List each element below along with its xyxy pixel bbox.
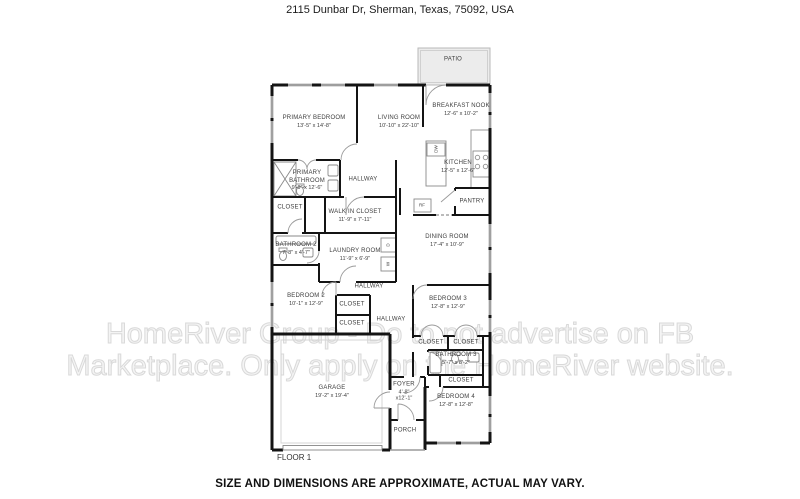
floorplan-page: 2115 Dunbar Dr, Sherman, Texas, 75092, U…: [0, 0, 800, 499]
room-label-primary-bedroom: PRIMARY BEDROOM13'-5" x 14'-8": [283, 115, 346, 129]
washer-label: W: [386, 262, 391, 266]
room-label-bedroom-2: BEDROOM 210'-1" x 12'-9": [287, 293, 325, 307]
room-label-kitchen: KITCHEN12'-5" x 12'-6": [441, 160, 475, 174]
room-label-porch: PORCH: [394, 427, 417, 435]
room-label-closet-b2-upper: CLOSET: [339, 301, 364, 309]
floor-plan-drawing: [0, 0, 800, 499]
room-label-hallway-mid: HALLWAY: [355, 283, 384, 291]
stove: [473, 151, 489, 177]
room-label-bedroom-4: BEDROOM 412'-8" x 12'-8": [437, 394, 475, 408]
sink: [328, 165, 338, 176]
room-label-hallway-top: HALLWAY: [349, 176, 378, 184]
room-label-pantry: PANTRY: [460, 198, 485, 206]
room-label-hallway-vertical: HALLWAY: [377, 316, 406, 324]
room-label-closet-bath3: CLOSET: [448, 377, 473, 385]
floor-label: FLOOR 1: [277, 453, 311, 462]
room-label-breakfast-nook: BREAKFAST NOOK12'-6" x 10'-2": [432, 103, 489, 117]
room-label-closet-b3-right: CLOSET: [453, 339, 478, 347]
room-label-laundry-room: LAUNDRY ROOM11'-9" x 6'-9": [329, 248, 380, 262]
room-label-primary-bathroom: PRIMARY BATHROOM9'-9" x 12'-6": [286, 170, 328, 192]
room-label-living-room: LIVING ROOM10'-10" x 22'-10": [378, 115, 420, 129]
room-label-bathroom-3: BATHROOM 35'-7" x 8'-2": [435, 352, 476, 366]
room-label-garage: GARAGE19'-2" x 19'-4": [315, 385, 349, 399]
sink: [328, 180, 338, 191]
room-label-bathroom-2: BATHROOM 27'-8" x 4'-7": [275, 242, 316, 256]
room-label-closet-primary: CLOSET: [277, 204, 302, 212]
refrigerator-label: RF: [419, 203, 425, 208]
room-label-walk-in-closet: WALK IN CLOSET11'-9" x 7'-11": [329, 209, 382, 223]
disclaimer-text: SIZE AND DIMENSIONS ARE APPROXIMATE, ACT…: [0, 478, 800, 490]
garage-door: [283, 446, 382, 451]
room-label-patio: PATIO: [444, 56, 462, 64]
page-title: 2115 Dunbar Dr, Sherman, Texas, 75092, U…: [0, 4, 800, 16]
room-label-bedroom-3: BEDROOM 312'-8" x 12'-9": [429, 296, 467, 310]
room-label-dining-room: DINING ROOM17'-4" x 10'-9": [425, 234, 469, 248]
room-label-closet-b2-lower: CLOSET: [339, 320, 364, 328]
room-label-foyer: FOYER4'-8" x12'-1": [391, 381, 418, 402]
dryer-label: D: [386, 243, 391, 246]
patio-deck: [418, 48, 490, 85]
dishwasher-label: DW: [434, 145, 439, 153]
room-label-closet-b3-left: CLOSET: [418, 339, 443, 347]
